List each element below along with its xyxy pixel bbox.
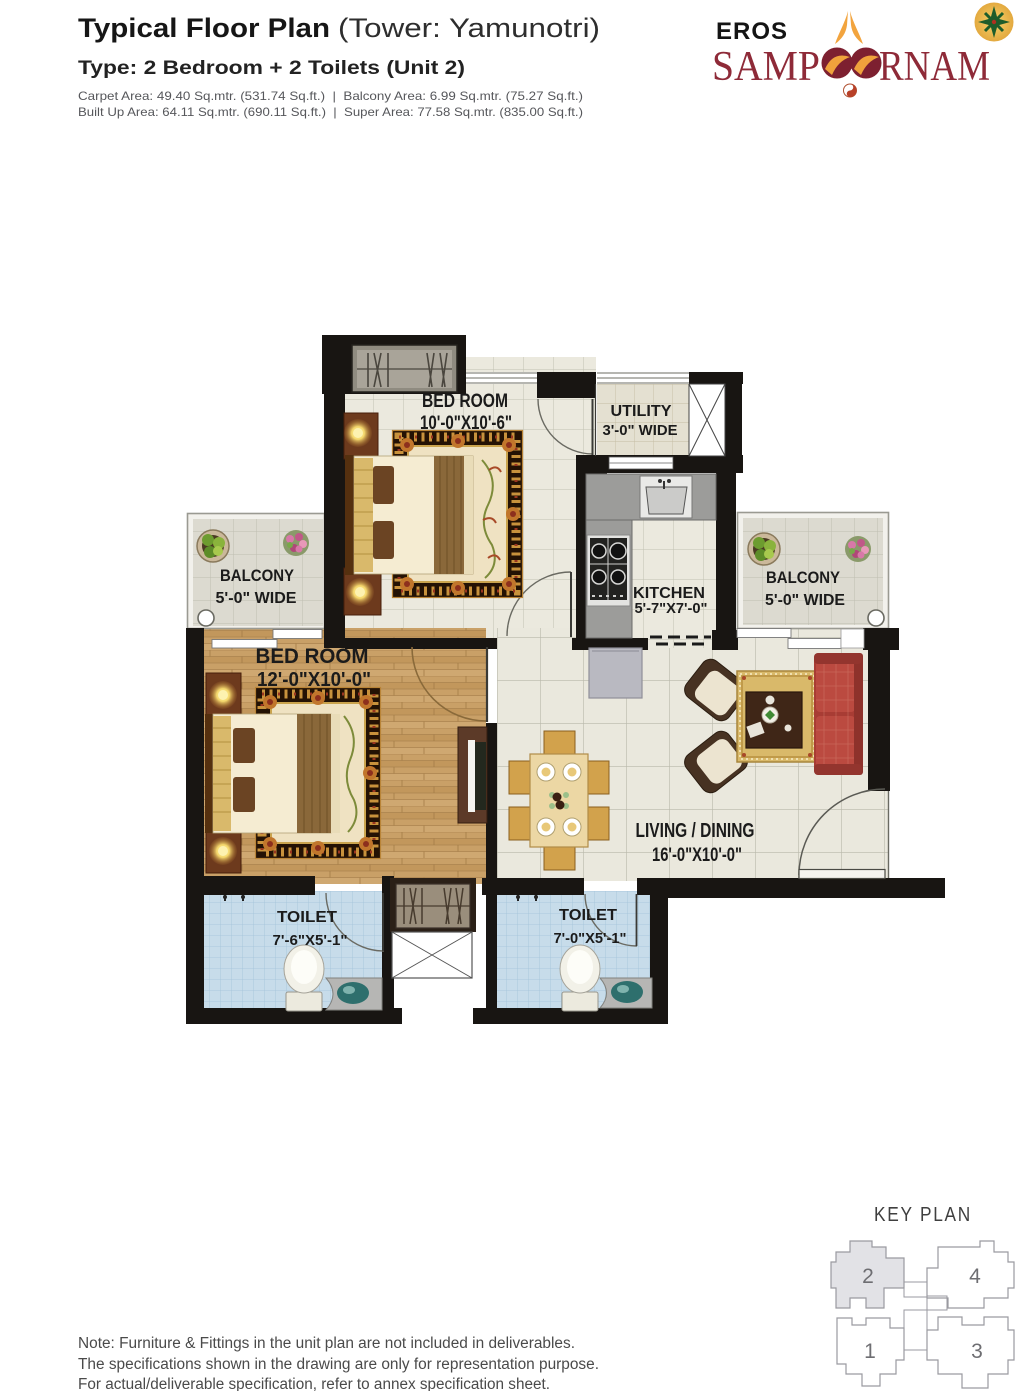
svg-text:16'-0"X10'-0": 16'-0"X10'-0" xyxy=(652,845,742,866)
svg-text:Type: 2 Bedroom + 2 Toilets (U: Type: 2 Bedroom + 2 Toilets (Unit 2) xyxy=(78,57,465,79)
svg-text:5'-7"X7'-0": 5'-7"X7'-0" xyxy=(635,600,708,617)
svg-text:KEY PLAN: KEY PLAN xyxy=(874,1204,972,1226)
svg-text:3: 3 xyxy=(971,1340,983,1363)
svg-text:SAMP: SAMP xyxy=(712,44,820,90)
svg-text:The specifications shown in th: The specifications shown in the drawing … xyxy=(78,1356,599,1373)
svg-text:RNAM: RNAM xyxy=(879,44,990,90)
svg-text:Built Up Area: 64.11 Sq.mtr. (: Built Up Area: 64.11 Sq.mtr. (690.11 Sq.… xyxy=(78,106,583,119)
svg-text:10'-0"X10'-6": 10'-0"X10'-6" xyxy=(420,413,512,434)
svg-text:EROS: EROS xyxy=(716,18,788,45)
svg-text:7'-0"X5'-1": 7'-0"X5'-1" xyxy=(554,930,627,947)
svg-text:5'-0" WIDE: 5'-0" WIDE xyxy=(216,590,297,607)
svg-text:BALCONY: BALCONY xyxy=(766,568,841,587)
svg-text:BED ROOM: BED ROOM xyxy=(256,645,369,668)
svg-text:Carpet Area: 49.40 Sq.mtr. (53: Carpet Area: 49.40 Sq.mtr. (531.74 Sq.ft… xyxy=(78,90,583,103)
svg-text:BED ROOM: BED ROOM xyxy=(422,391,508,412)
svg-text:2: 2 xyxy=(862,1265,874,1288)
svg-text:7'-6"X5'-1": 7'-6"X5'-1" xyxy=(273,932,348,949)
svg-text:Note: Furniture & Fittings in: Note: Furniture & Fittings in the unit p… xyxy=(78,1335,575,1352)
svg-text:UTILITY: UTILITY xyxy=(611,403,672,420)
svg-text:Typical Floor Plan: Typical Floor Plan xyxy=(78,13,330,43)
svg-text:LIVING / DINING: LIVING / DINING xyxy=(636,820,755,842)
svg-text:1: 1 xyxy=(864,1340,876,1363)
svg-text:12'-0"X10'-0": 12'-0"X10'-0" xyxy=(257,669,371,691)
svg-text:For actual/deliverable specifi: For actual/deliverable specification, re… xyxy=(78,1376,550,1391)
svg-text:TOILET: TOILET xyxy=(277,909,337,926)
svg-text:5'-0" WIDE: 5'-0" WIDE xyxy=(765,592,845,609)
svg-text:BALCONY: BALCONY xyxy=(220,566,295,585)
svg-text:3'-0" WIDE: 3'-0" WIDE xyxy=(603,422,678,439)
svg-text:(Tower: Yamunotri): (Tower: Yamunotri) xyxy=(338,13,600,43)
svg-text:4: 4 xyxy=(969,1265,981,1288)
svg-text:TOILET: TOILET xyxy=(559,907,617,924)
